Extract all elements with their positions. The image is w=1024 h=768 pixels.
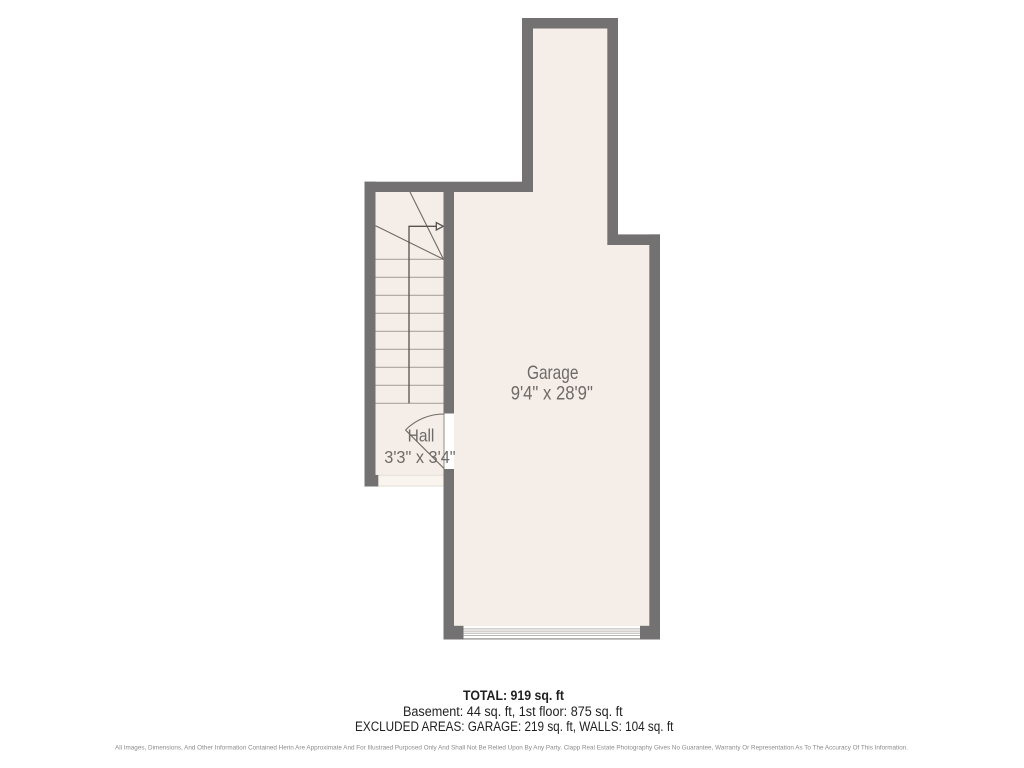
svg-text:Garage: Garage	[527, 362, 579, 384]
svg-text:EXCLUDED AREAS: GARAGE: 219 sq: EXCLUDED AREAS: GARAGE: 219 sq. ft, WALL…	[355, 719, 674, 734]
svg-text:TOTAL: 919 sq. ft: TOTAL: 919 sq. ft	[463, 688, 564, 703]
svg-text:All Images, Dimensions, And Ot: All Images, Dimensions, And Other Inform…	[115, 745, 908, 752]
svg-text:9'4" x 28'9": 9'4" x 28'9"	[511, 383, 593, 405]
svg-text:Basement: 44 sq. ft, 1st floor: Basement: 44 sq. ft, 1st floor: 875 sq. …	[403, 704, 623, 719]
svg-text:Hall: Hall	[408, 425, 435, 445]
svg-text:3'3" x 3'4": 3'3" x 3'4"	[384, 447, 455, 467]
